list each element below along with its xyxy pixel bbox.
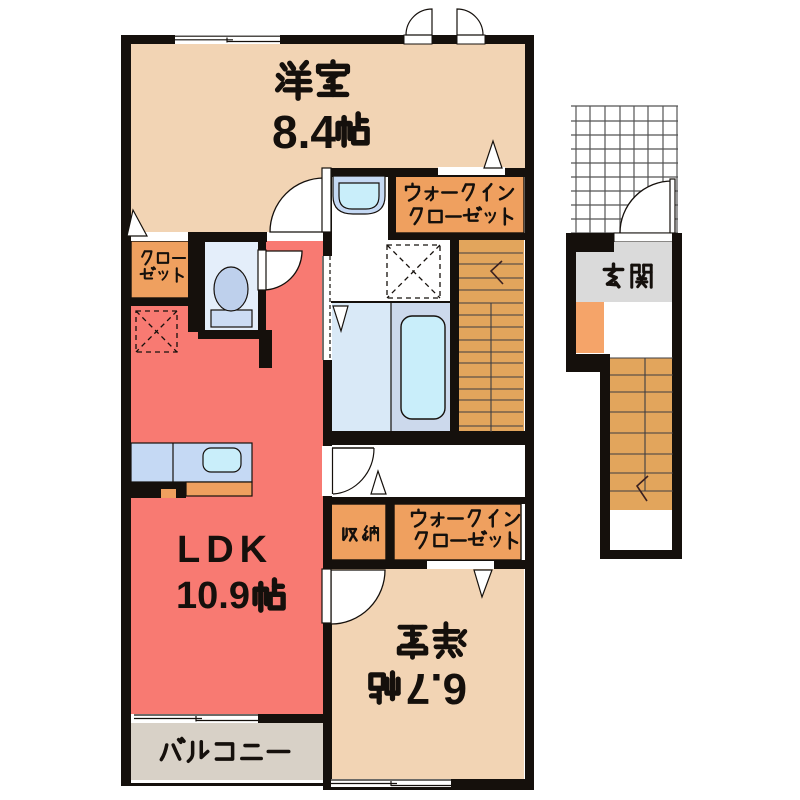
- svg-text:6.7: 6.7: [406, 664, 467, 713]
- svg-text:8.4: 8.4: [272, 106, 336, 158]
- svg-text:LDK: LDK: [177, 529, 273, 571]
- svg-text:10.9: 10.9: [176, 575, 250, 617]
